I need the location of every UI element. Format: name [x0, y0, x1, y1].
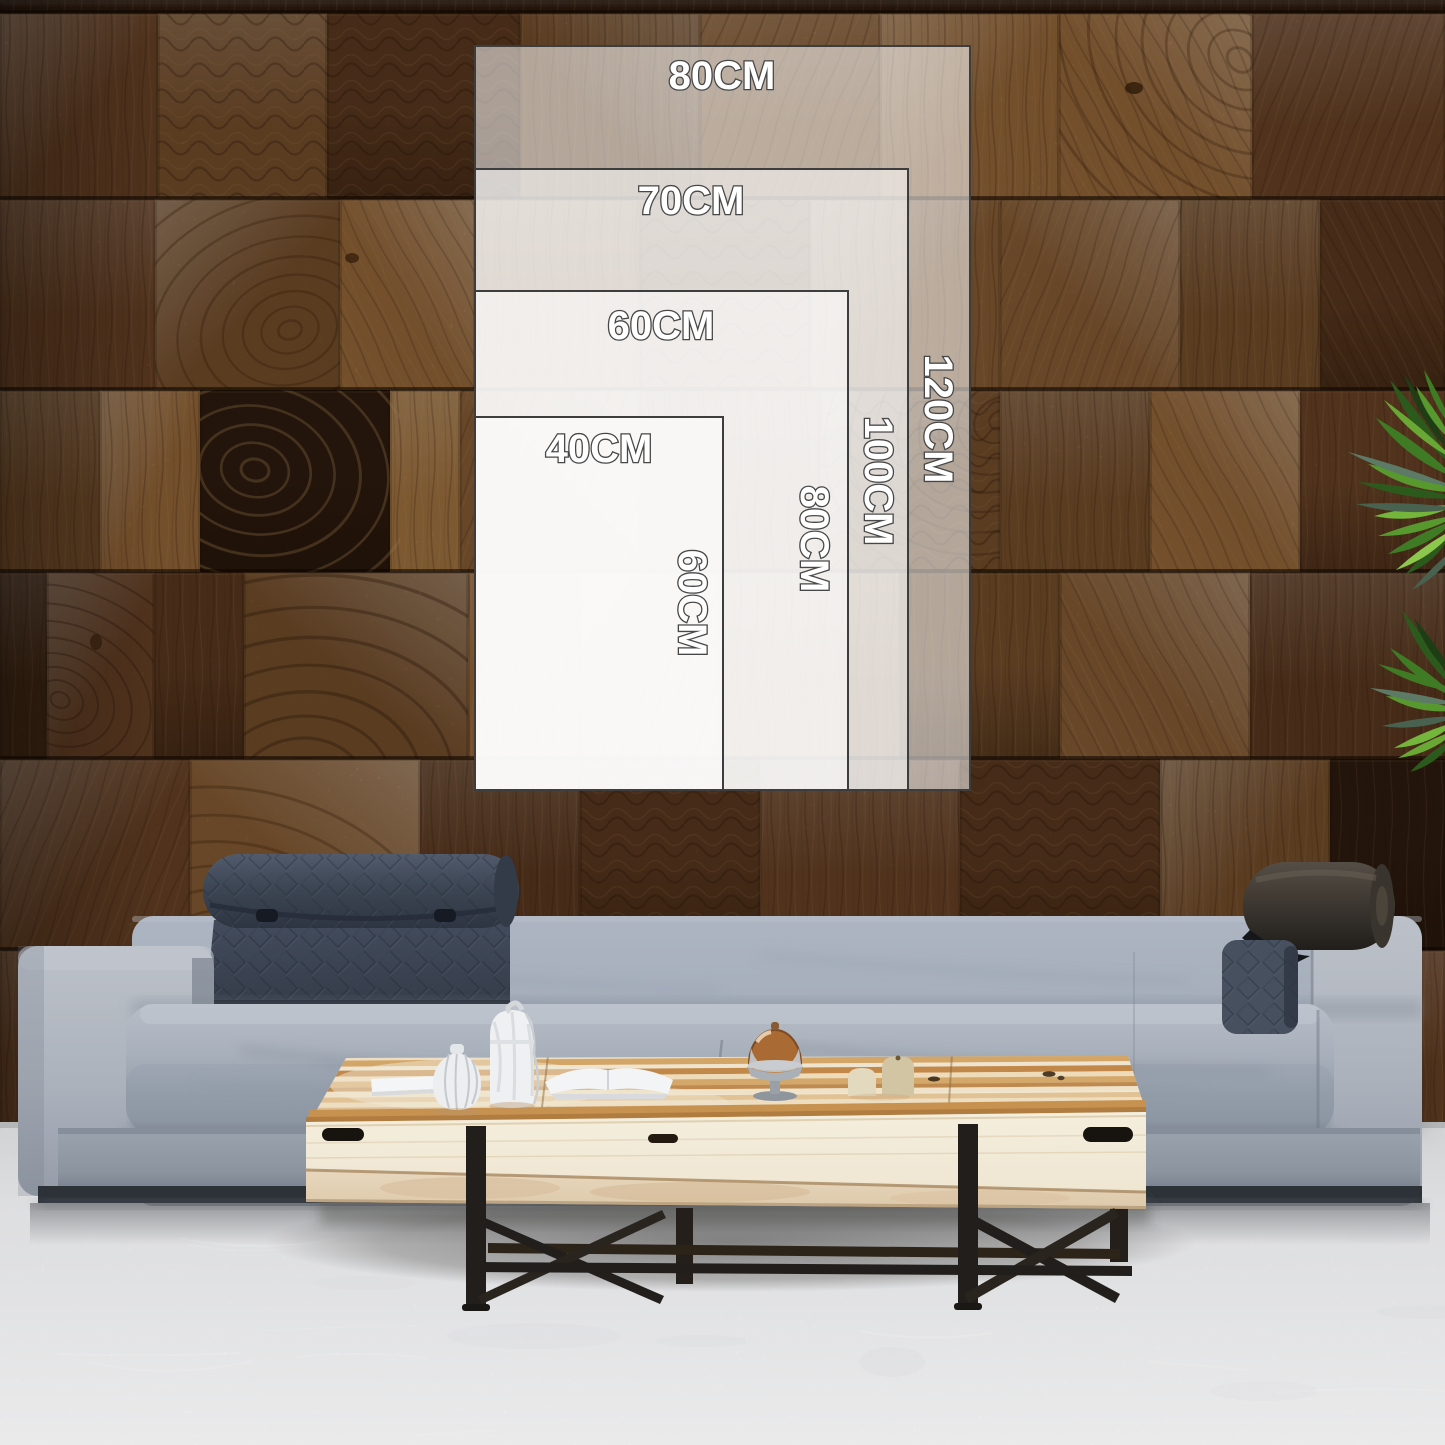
svg-text:60CM: 60CM: [670, 550, 714, 657]
svg-text:60CM: 60CM: [608, 304, 715, 348]
svg-text:80CM: 80CM: [792, 486, 836, 593]
svg-text:80CM: 80CM: [669, 54, 776, 98]
svg-text:100CM: 100CM: [856, 417, 900, 546]
svg-text:40CM: 40CM: [546, 427, 653, 471]
svg-text:120CM: 120CM: [916, 355, 960, 484]
svg-text:70CM: 70CM: [638, 179, 745, 223]
